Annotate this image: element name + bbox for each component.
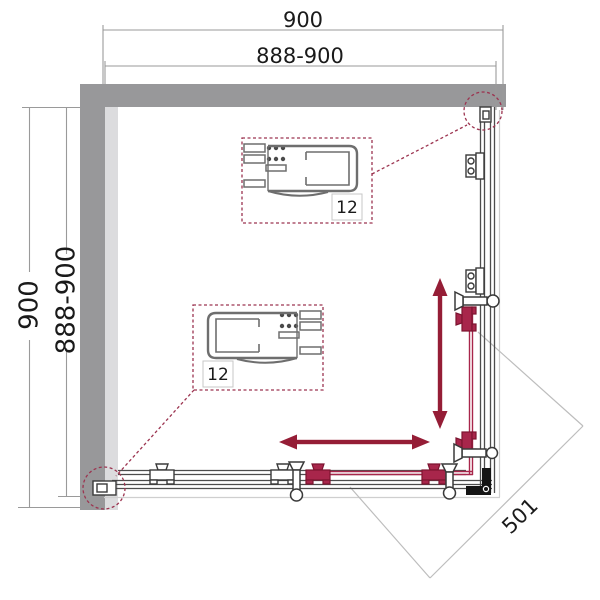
slide-arrow-vertical [433,278,448,429]
top-wall [80,84,506,107]
sliding-door-panels [311,312,473,475]
profile-section-bottom [208,311,321,363]
profile-section-top [244,144,357,196]
dim-left-adjustable: 888-900 [52,246,82,355]
detail-label-bottom: 12 [203,361,233,387]
dim-top-overall: 900 [283,8,323,32]
roller-bracket-right-upper [466,153,484,179]
right-rail-wall-bracket [480,107,491,122]
detail-label-top: 12 [332,194,362,220]
roller-bracket-right-lower [466,268,484,294]
shower-enclosure-drawing: 900 888-900 900 888-900 501 [0,0,600,600]
callout-leader-top [372,125,467,174]
detail-label-bottom-text: 12 [207,365,229,385]
shower-tray-left-rim [105,107,118,510]
bottom-rail-wall-bracket [93,481,116,495]
dim-left-overall: 900 [15,280,45,330]
left-wall [80,84,105,510]
detail-label-top-text: 12 [336,198,358,218]
dim-diagonal-entry: 501 [497,493,543,538]
callout-leader-bottom [116,390,194,476]
dim-top-adjustable: 888-900 [256,44,344,68]
plan-view-svg: 900 888-900 900 888-900 501 [0,0,600,600]
door-handle-right-upper [455,292,499,310]
slide-arrow-horizontal [279,435,430,450]
